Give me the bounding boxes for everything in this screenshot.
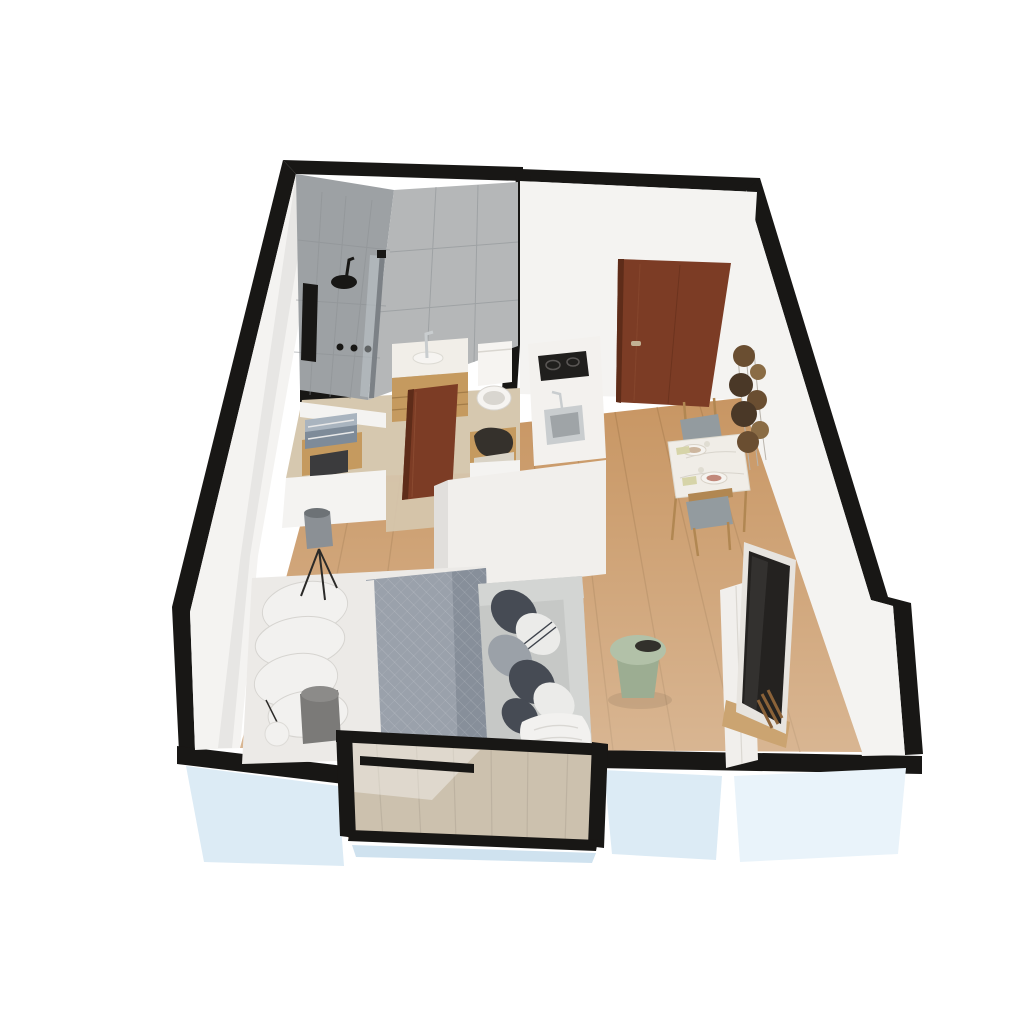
door-handle — [631, 341, 641, 346]
towel-alcove-left — [302, 413, 362, 478]
floor-plan-canvas — [0, 0, 1024, 1024]
bathroom-south-face — [282, 470, 386, 528]
lamp-shade-top — [304, 508, 330, 518]
exterior-face-mid — [604, 770, 722, 860]
table-tray — [635, 640, 661, 652]
floor-plan-3d — [0, 0, 1024, 1024]
induction-cooktop — [538, 351, 589, 381]
balcony — [336, 730, 608, 863]
exterior-face-right — [734, 768, 906, 862]
sofa — [478, 576, 592, 756]
side-stool — [300, 686, 341, 744]
duvet-texture — [366, 568, 492, 758]
toilet — [477, 341, 512, 410]
shower-niche — [301, 283, 318, 362]
